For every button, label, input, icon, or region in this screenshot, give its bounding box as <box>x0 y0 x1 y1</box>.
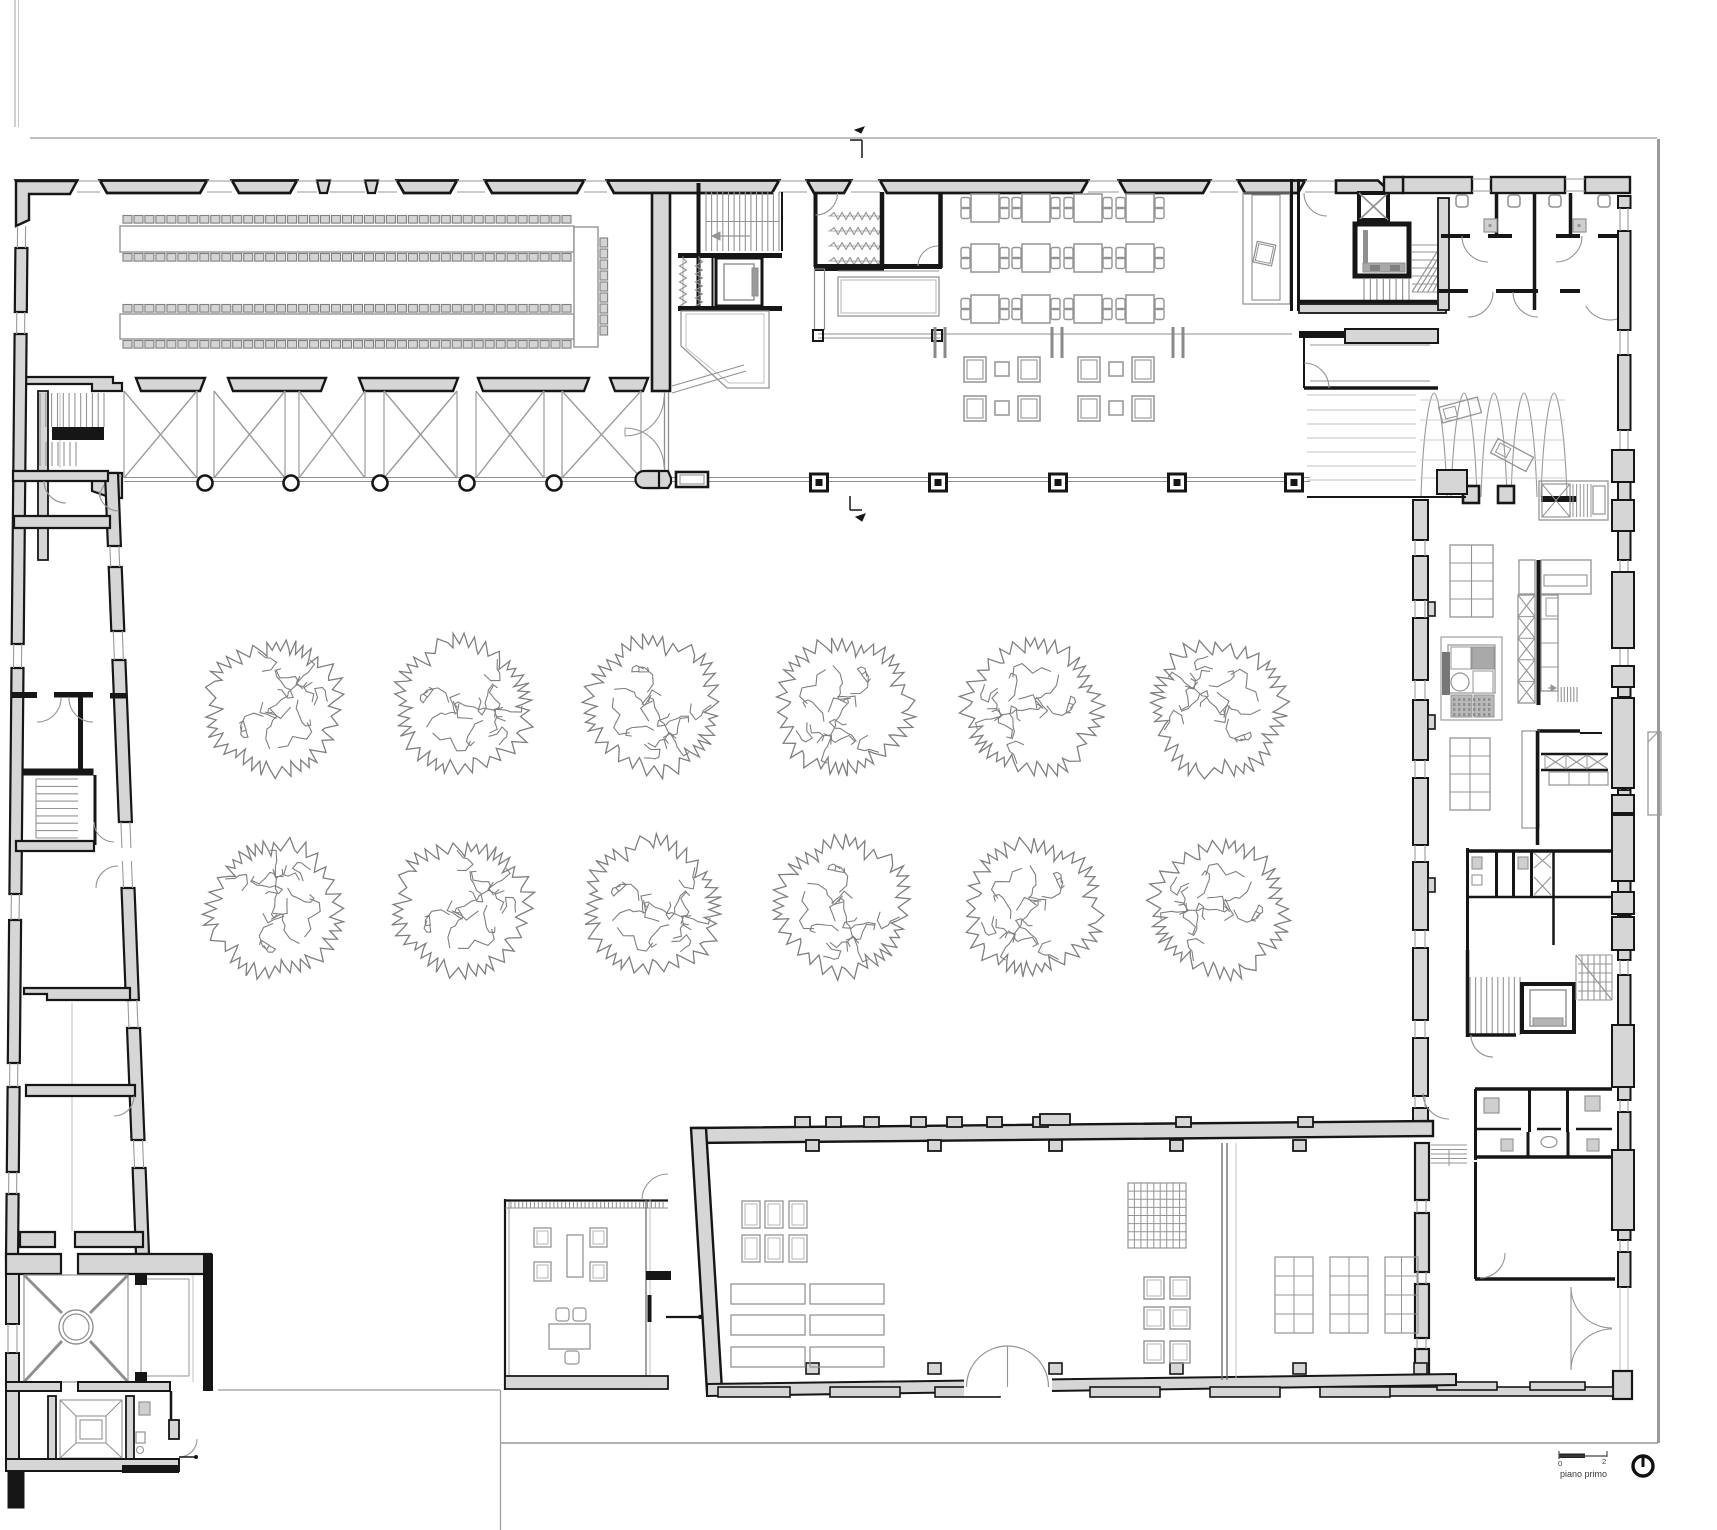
svg-text:0: 0 <box>1558 1459 1562 1468</box>
svg-text:piano primo: piano primo <box>1560 1469 1607 1479</box>
svg-text:2: 2 <box>1602 1457 1606 1466</box>
